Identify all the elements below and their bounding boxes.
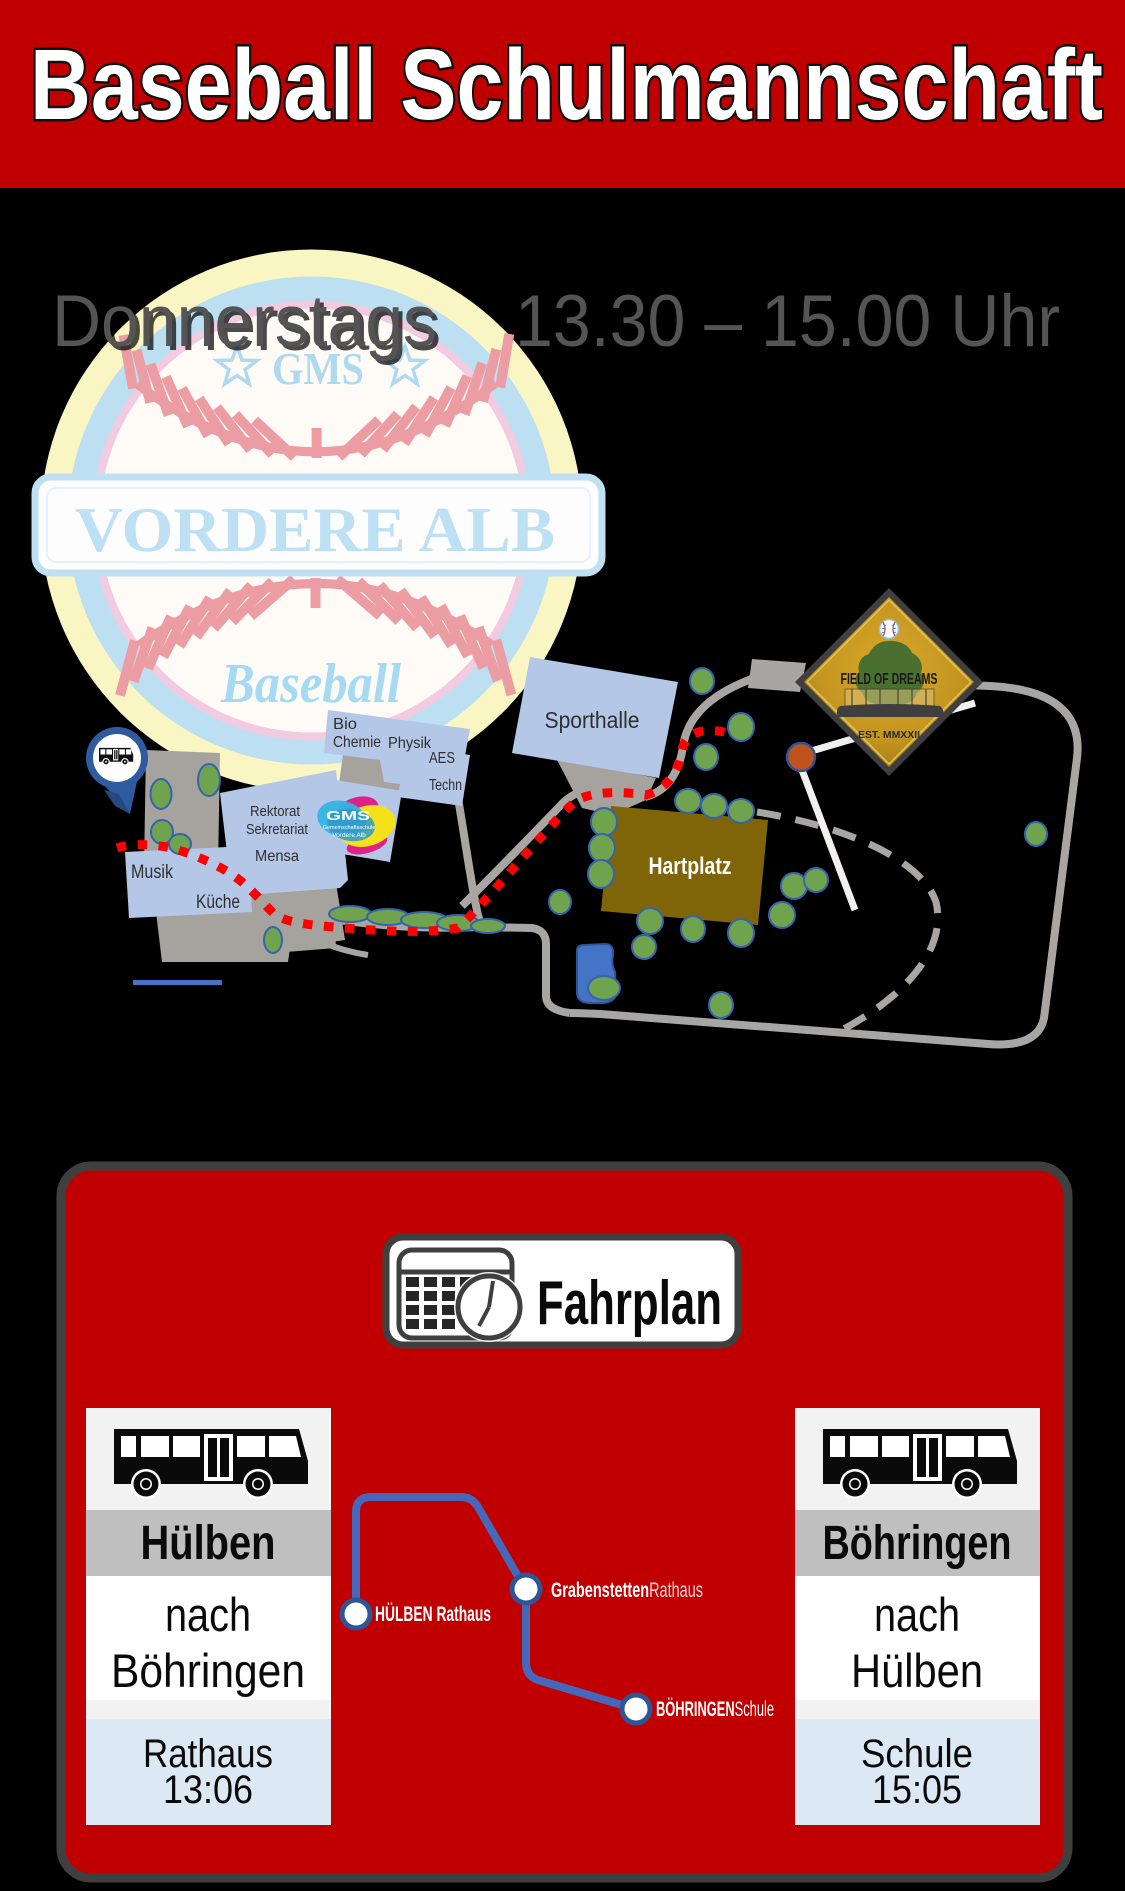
svg-text:Sporthalle: Sporthalle <box>545 707 640 733</box>
svg-text:Rektorat: Rektorat <box>250 803 301 820</box>
svg-text:Bio: Bio <box>333 716 357 733</box>
svg-text:15:05: 15:05 <box>872 1768 962 1812</box>
svg-text:GrabenstettenRathaus: GrabenstettenRathaus <box>551 1579 703 1602</box>
svg-text:HÜLBEN Rathaus: HÜLBEN Rathaus <box>375 1603 491 1626</box>
svg-text:Vordere Alb: Vordere Alb <box>332 832 366 839</box>
svg-text:Fahrplan: Fahrplan <box>537 1269 722 1338</box>
svg-text:BÖHRINGENSchule: BÖHRINGENSchule <box>656 1698 774 1721</box>
svg-text:Böhringen: Böhringen <box>111 1644 305 1697</box>
svg-text:Hartplatz: Hartplatz <box>649 853 732 880</box>
svg-text:Hülben: Hülben <box>141 1517 276 1570</box>
svg-text:Sekretariat: Sekretariat <box>246 821 309 838</box>
svg-text:13.30 – 15.00 Uhr: 13.30 – 15.00 Uhr <box>515 281 1060 362</box>
svg-text:Musik: Musik <box>131 862 173 883</box>
svg-text:Techn: Techn <box>429 777 462 794</box>
svg-text:Mensa: Mensa <box>255 848 299 865</box>
svg-text:Chemie: Chemie <box>333 734 381 751</box>
svg-text:Physik: Physik <box>388 735 432 752</box>
svg-text:Hülben: Hülben <box>851 1644 983 1697</box>
svg-text:GMS: GMS <box>326 808 370 823</box>
svg-text:nach: nach <box>874 1588 960 1641</box>
svg-text:Baseball Schulmannschaft: Baseball Schulmannschaft <box>30 29 1103 141</box>
svg-text:VORDERE ALB: VORDERE ALB <box>75 494 555 565</box>
svg-text:13:06: 13:06 <box>163 1768 253 1812</box>
svg-text:Donnerstags: Donnerstags <box>52 281 437 362</box>
svg-text:Böhringen: Böhringen <box>823 1517 1012 1570</box>
svg-text:Gemeinschaftsschule: Gemeinschaftsschule <box>323 825 376 831</box>
svg-text:Baseball: Baseball <box>220 653 401 715</box>
svg-text:AES: AES <box>429 750 455 767</box>
svg-text:nach: nach <box>165 1588 251 1641</box>
svg-text:EST. MMXXII: EST. MMXXII <box>858 730 920 741</box>
svg-text:FIELD OF DREAMS: FIELD OF DREAMS <box>841 671 938 688</box>
